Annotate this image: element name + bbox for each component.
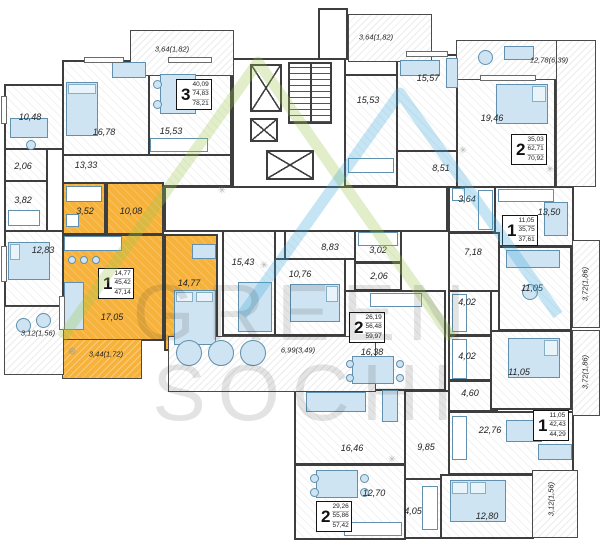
room-label: 8,83: [321, 242, 339, 252]
kitchen-counter-icon: [348, 158, 394, 173]
snowflake-icon: ✳: [388, 455, 396, 466]
pillow-icon: [326, 286, 338, 302]
room-label: 4,05: [404, 506, 422, 516]
bathtub-icon: [358, 232, 398, 246]
area-no-balcony: 42,43: [549, 420, 565, 429]
balcony-label: 6,99(3,49): [281, 346, 315, 355]
sofa-icon: [64, 282, 84, 330]
room-label: 13,33: [75, 160, 98, 170]
room-label: 16,46: [341, 443, 364, 453]
apartment-info-1room-highlighted[interactable]: 1 14,77 45,42 47,14: [98, 268, 134, 299]
area-no-balcony: 45,42: [114, 278, 130, 287]
window: [480, 75, 536, 81]
kitchen-counter-icon: [370, 293, 422, 307]
plant-icon: ❆: [68, 347, 76, 358]
balcony-label: 3,72(1,86): [581, 267, 590, 301]
area-no-balcony: 74,83: [192, 89, 208, 98]
snowflake-icon: ✳: [260, 261, 268, 272]
chair-icon: [310, 488, 319, 497]
highlight-balcony-3-44[interactable]: [62, 339, 142, 379]
armchair-icon: [36, 313, 51, 328]
terrace-label: 12,78(6,39): [530, 56, 568, 65]
chair-icon: [346, 360, 354, 368]
chair-icon: [153, 100, 162, 109]
balcony-label: 3,44(1,72): [89, 350, 123, 359]
snowflake-icon: ✳: [459, 146, 467, 157]
room-count: 2: [352, 319, 365, 336]
bed-icon: [238, 282, 272, 332]
area-living: 14,77: [114, 270, 130, 278]
pillow-icon: [68, 84, 96, 94]
room-label: 16,78: [93, 127, 116, 137]
bathtub-icon: [8, 210, 40, 226]
room-count: 3: [179, 86, 192, 103]
window: [406, 51, 448, 57]
pillow-icon: [452, 482, 468, 494]
room-label: 10,48: [19, 112, 42, 122]
armchair-icon: [208, 340, 234, 366]
balcony-label: 3,64(1,82): [359, 33, 393, 42]
balcony-label: 3,64(1,82): [155, 45, 189, 54]
room-label: 3,64: [458, 194, 476, 204]
window: [168, 57, 212, 63]
pillow-icon: [196, 292, 213, 302]
area-no-balcony: 56,48: [365, 322, 381, 331]
room-label: 16,38: [361, 347, 384, 357]
room-label: 15,57: [417, 73, 440, 83]
core-tower: [318, 8, 348, 60]
room-label: 11,05: [521, 283, 543, 293]
area-living: 11,05: [549, 412, 565, 420]
pillow-icon: [10, 244, 20, 260]
room-label: 22,76: [479, 425, 502, 435]
room-count: 1: [536, 417, 549, 434]
chair-icon: [396, 374, 404, 382]
room-label: 9,85: [417, 442, 435, 452]
chair-icon: [153, 80, 162, 89]
area-living: 40,09: [192, 81, 208, 89]
dining-table-icon: [316, 470, 358, 498]
room-label: 15,53: [357, 95, 380, 105]
room-label: 13,50: [538, 207, 561, 217]
area-total: 37,61: [518, 235, 534, 244]
kitchen-counter-icon: [452, 416, 467, 460]
room-label: 17,05: [101, 312, 124, 322]
balcony-3-12-left: [4, 306, 64, 375]
chair-icon: [26, 140, 36, 150]
room-label: 3,82: [14, 195, 32, 205]
room-count: 1: [101, 275, 114, 292]
elevator-shaft-icon: [250, 64, 282, 112]
balcony-label: 3,12(1,56): [547, 482, 556, 516]
area-total: 59,97: [365, 332, 381, 341]
kitchen-counter-icon: [344, 522, 402, 536]
pillow-icon: [544, 340, 558, 356]
apartment-info-3room-topleft[interactable]: 3 40,09 74,83 78,21: [176, 79, 212, 110]
kitchen-counter-icon: [64, 236, 122, 251]
room-label: 15,53: [160, 126, 183, 136]
stool-icon: [68, 256, 76, 264]
common-corridor: [164, 186, 448, 232]
area-living: 26,19: [365, 314, 381, 322]
sofa-icon: [506, 250, 560, 268]
area-total: 57,42: [332, 521, 348, 530]
balcony-label: 3,12(1,56): [21, 329, 55, 338]
floor-plan: 10,48 16,78 15,53 13,33 2,06 3,82 12,83 …: [0, 0, 600, 543]
room-count: 2: [514, 141, 527, 158]
kitchen-counter-icon: [150, 138, 208, 152]
pillow-icon: [470, 482, 486, 494]
chair-icon: [396, 360, 404, 368]
pillow-icon: [532, 86, 546, 102]
area-living: 11,05: [518, 217, 534, 225]
apartment-info-2room-topright[interactable]: 2 35,03 62,71 70,92: [511, 134, 547, 165]
room-label: 2,06: [370, 271, 388, 281]
room-label: 7,18: [464, 247, 482, 257]
desk-icon: [112, 62, 146, 78]
room-label: 14,77: [178, 278, 201, 288]
room-label: 10,76: [289, 269, 312, 279]
wardrobe-icon: [446, 58, 458, 88]
area-no-balcony: 35,75: [518, 225, 534, 234]
area-no-balcony: 55,86: [332, 511, 348, 520]
room-label: 2,06: [14, 161, 32, 171]
balcony-label: 3,72(1,86): [581, 355, 590, 389]
area-total: 78,21: [192, 99, 208, 108]
room-label: 11,05: [508, 367, 530, 377]
snowflake-icon: ✳: [218, 186, 226, 197]
kitchen-counter-icon: [498, 189, 554, 202]
area-total: 44,29: [549, 430, 565, 439]
room-label: 8,51: [432, 163, 450, 173]
apartment-info-1room-right[interactable]: 1 11,05 35,75 37,61: [502, 215, 538, 246]
stool-icon: [92, 256, 100, 264]
wardrobe-icon: [382, 390, 398, 422]
room-label: 3,02: [369, 245, 387, 255]
hallway-7-18: [448, 232, 500, 292]
room-label: 19,46: [481, 113, 504, 123]
area-living: 35,03: [527, 136, 543, 144]
desk-icon: [192, 244, 216, 259]
room-label: 12,70: [363, 488, 386, 498]
bathtub-icon: [478, 190, 493, 230]
stool-icon: [80, 256, 88, 264]
elevator-shaft-icon: [250, 118, 278, 142]
armchair-icon: [478, 50, 493, 65]
apartment-info-1room-bottomright[interactable]: 1 11,05 42,43 44,29: [533, 410, 569, 441]
armchair-icon: [176, 340, 202, 366]
area-no-balcony: 62,71: [527, 144, 543, 153]
hallway-8-51: [396, 150, 460, 188]
chair-icon: [360, 474, 369, 483]
area-total: 47,14: [114, 288, 130, 297]
chair-icon: [346, 374, 354, 382]
sofa-icon: [538, 444, 572, 460]
area-living: 29,26: [332, 503, 348, 511]
window: [1, 246, 7, 282]
area-total: 70,92: [527, 154, 543, 163]
apartment-info-2room-bottom[interactable]: 2 29,26 55,86 57,42: [316, 501, 352, 532]
room-label: 15,43: [232, 257, 255, 267]
room-count: 2: [319, 508, 332, 525]
desk-icon: [306, 392, 366, 412]
snowflake-icon: ✳: [546, 165, 554, 176]
bathtub-icon: [422, 486, 438, 530]
service-shaft-icon: [266, 150, 314, 180]
room-label: 12,80: [476, 511, 499, 521]
room-label: 4,60: [461, 388, 479, 398]
apartment-info-2room-middle[interactable]: 2 26,19 56,48 59,97: [349, 312, 385, 343]
window: [1, 96, 7, 124]
window: [59, 296, 65, 330]
room-label: 4,02: [458, 351, 476, 361]
room-label: 3,52: [76, 206, 94, 216]
room-label: 12,83: [32, 245, 55, 255]
window: [84, 57, 124, 63]
pillow-icon: [176, 292, 193, 302]
bathtub-icon: [66, 186, 102, 202]
staircase-icon: [288, 62, 332, 124]
room-count: 1: [505, 222, 518, 239]
room-label: 10,08: [120, 206, 143, 216]
armchair-icon: [240, 340, 266, 366]
dining-table-icon: [352, 356, 394, 384]
chair-icon: [310, 474, 319, 483]
room-label: 4,02: [458, 297, 476, 307]
